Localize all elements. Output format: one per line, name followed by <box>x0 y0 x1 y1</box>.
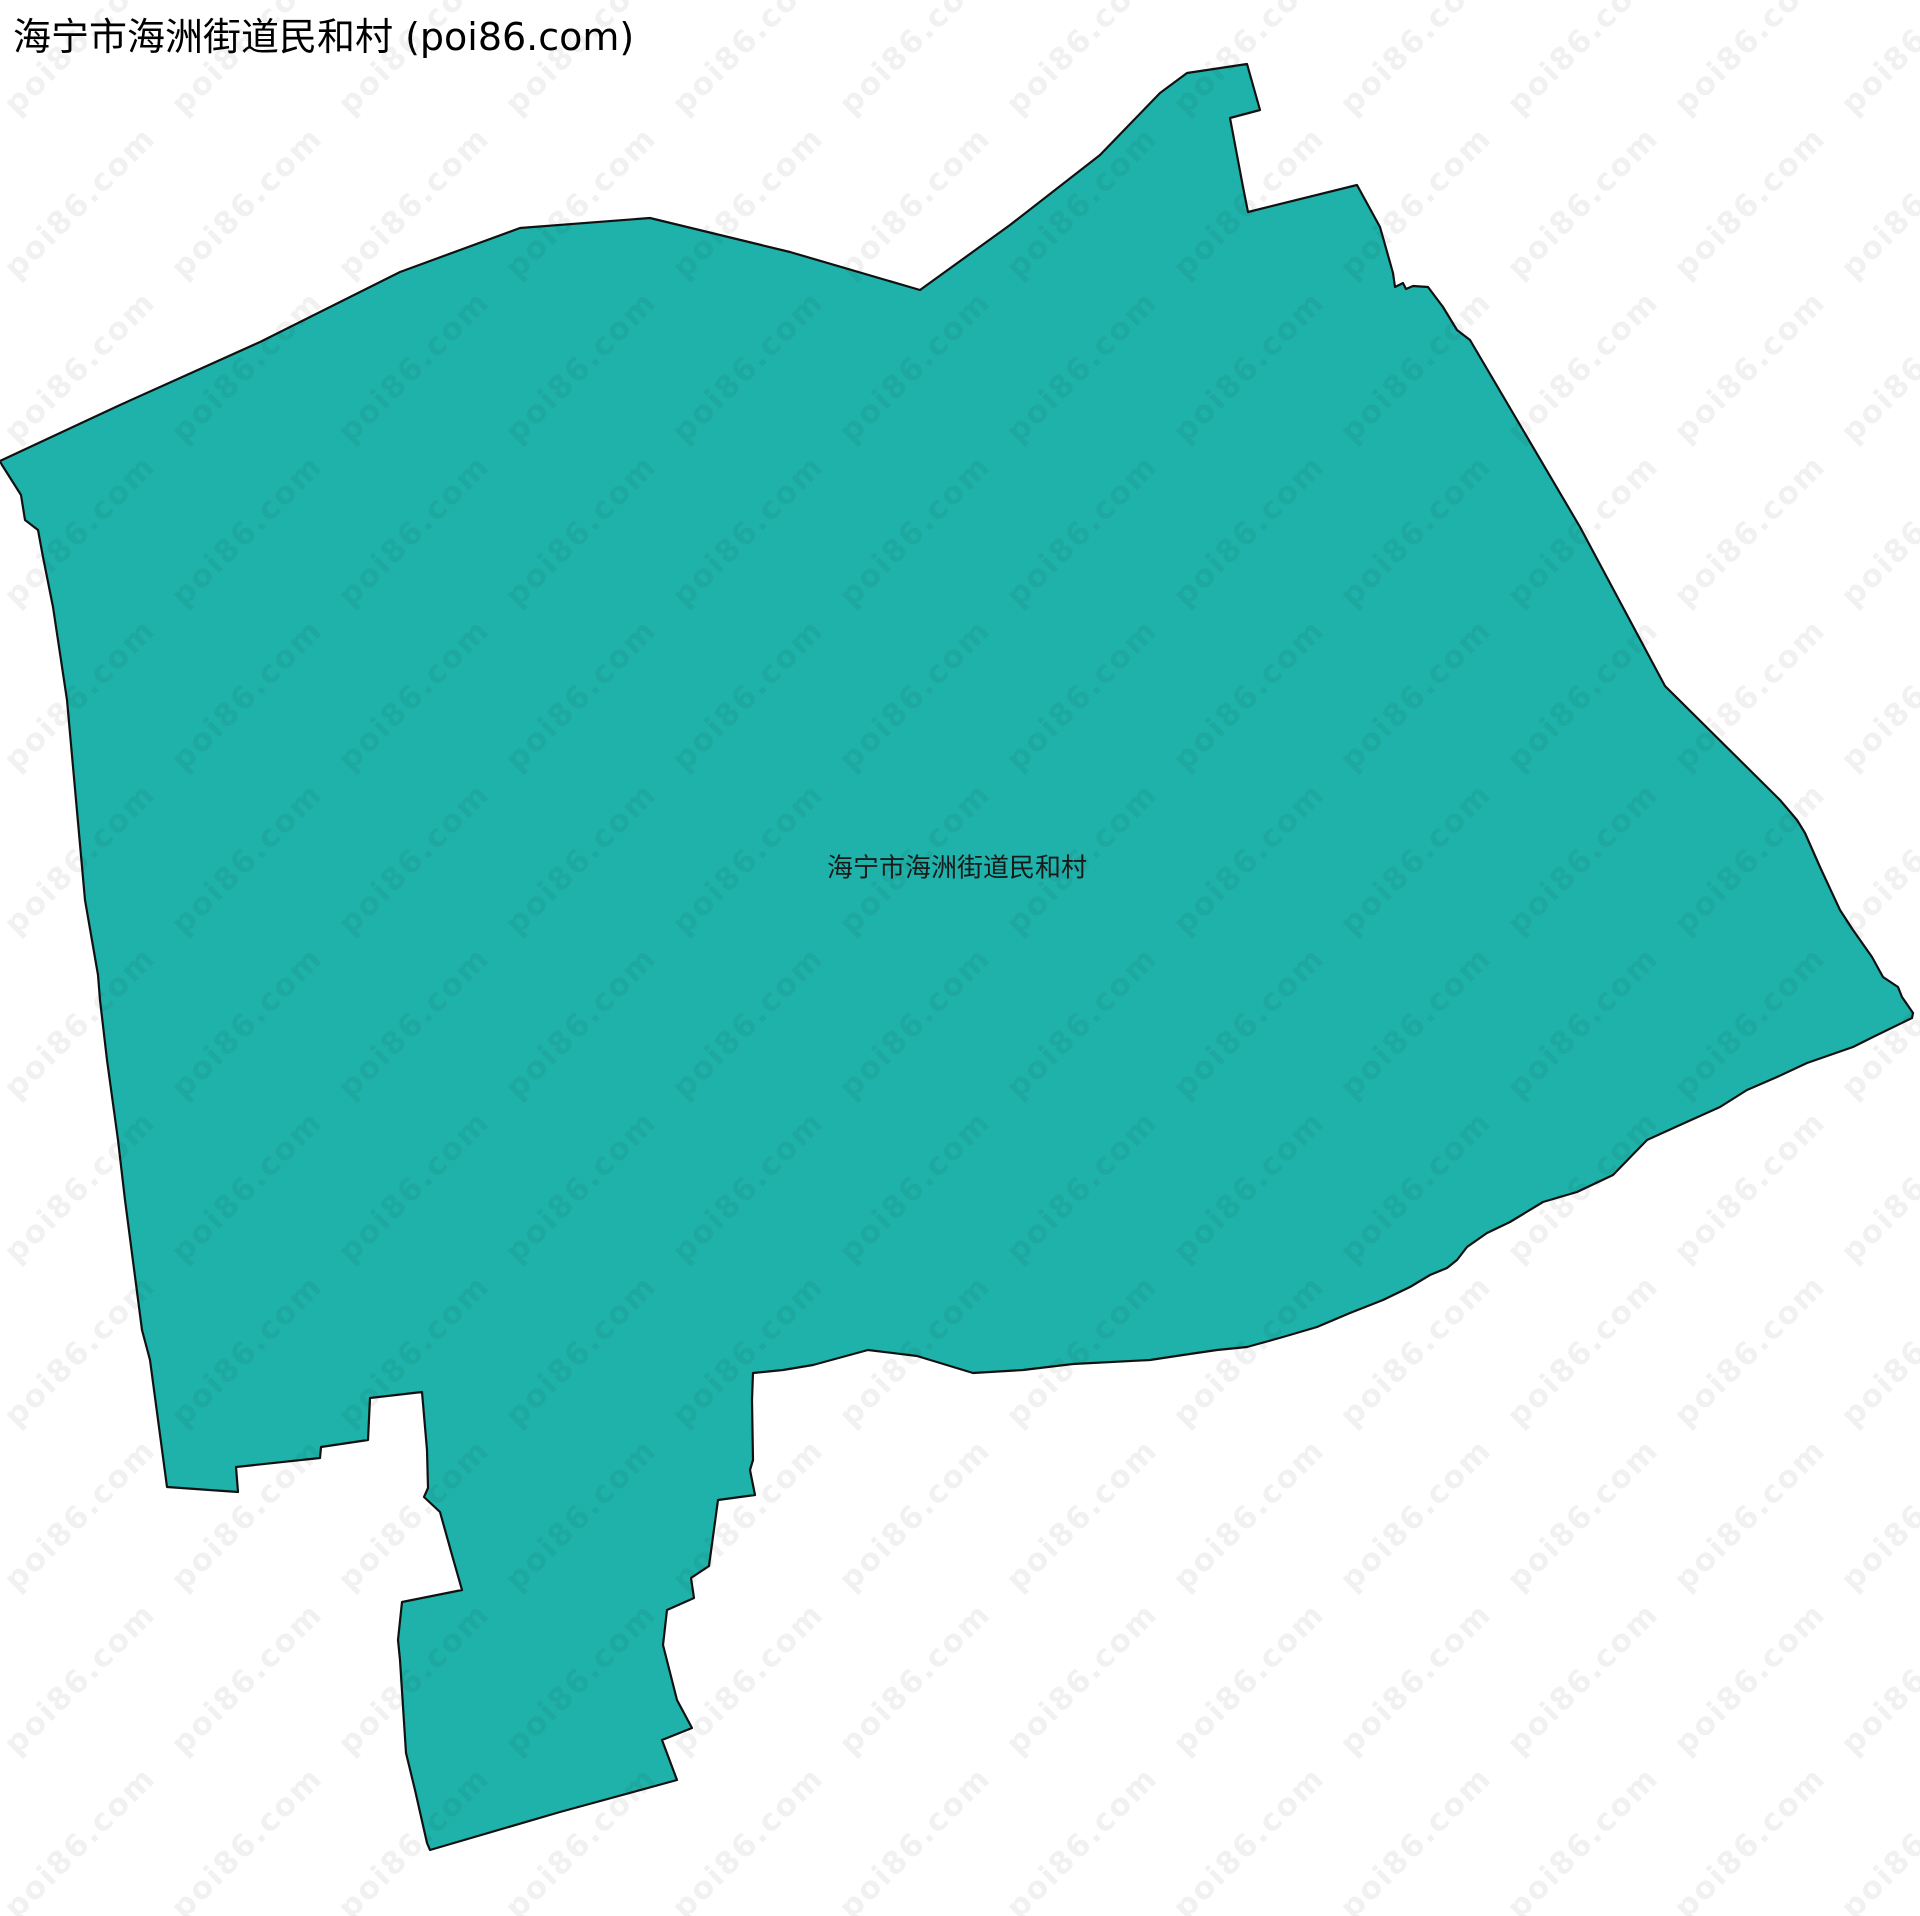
region-polygon <box>0 64 1913 1850</box>
map-svg <box>0 0 1920 1916</box>
map-page: poi86.compoi86.compoi86.compoi86.compoi8… <box>0 0 1920 1916</box>
page-title: 海宁市海洲街道民和村 (poi86.com) <box>13 6 634 61</box>
region-label: 海宁市海洲街道民和村 <box>827 848 1087 885</box>
